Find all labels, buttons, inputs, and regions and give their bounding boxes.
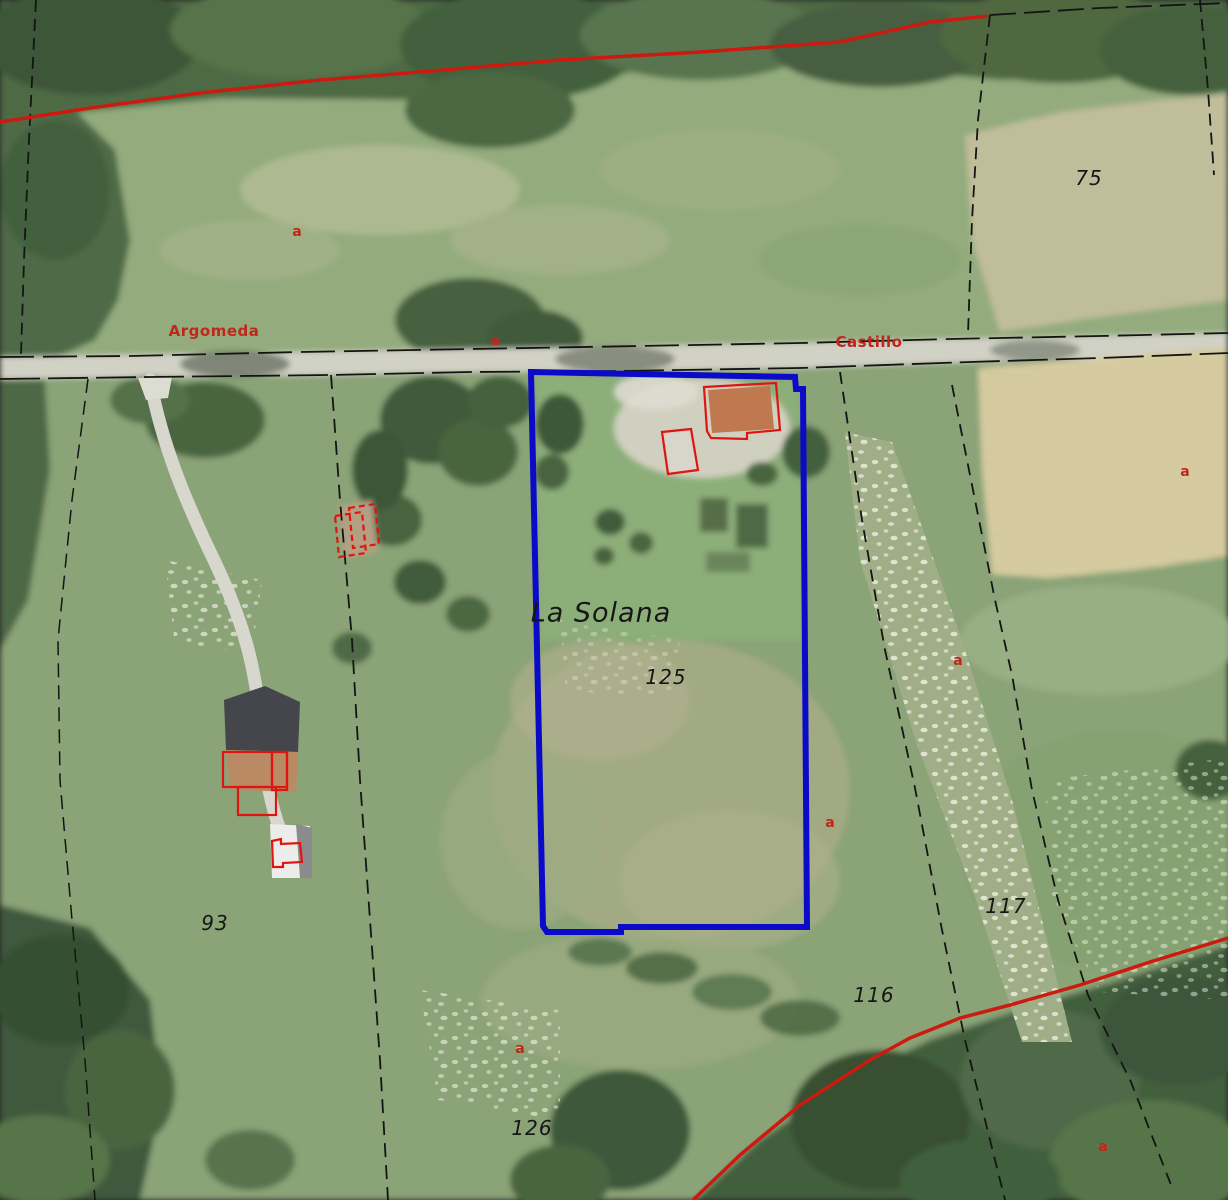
aerial-basemap — [0, 0, 1228, 1200]
parcel-building-roof — [708, 386, 774, 433]
cadastral-map-view[interactable]: La Solana Argomeda Castillo 75 125 93 11… — [0, 0, 1228, 1200]
